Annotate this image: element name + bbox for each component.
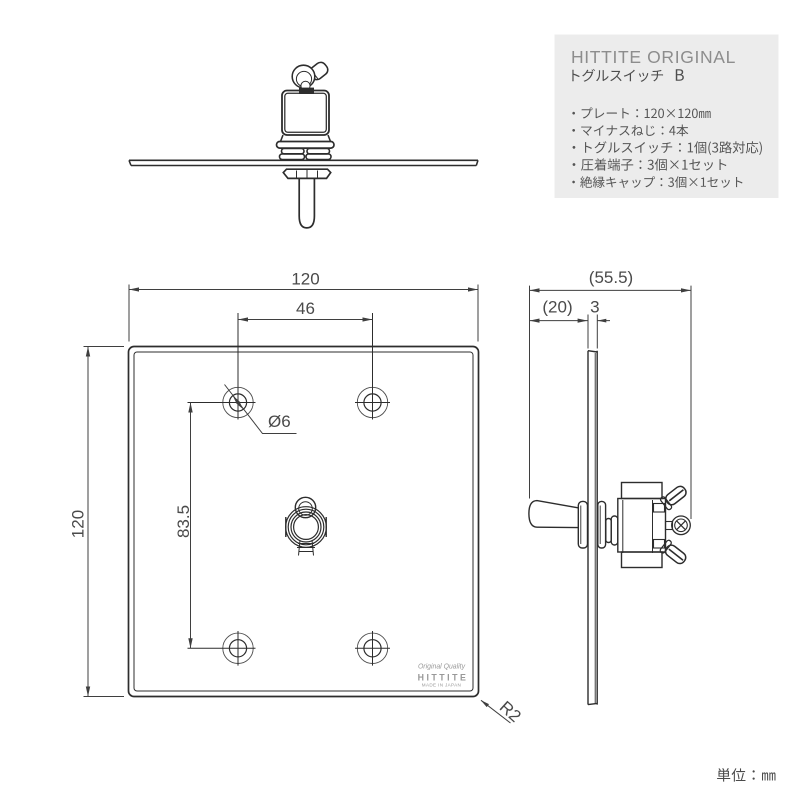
svg-text:HITTITE: HITTITE	[418, 673, 469, 683]
svg-text:120: 120	[291, 270, 319, 289]
svg-text:46: 46	[296, 299, 315, 318]
svg-text:(20): (20)	[542, 298, 572, 317]
svg-text:MADE IN JAPAN: MADE IN JAPAN	[422, 683, 461, 688]
svg-text:120: 120	[69, 510, 88, 538]
svg-text:Ø6: Ø6	[268, 412, 291, 431]
svg-text:3: 3	[590, 298, 599, 317]
svg-text:Original Quality: Original Quality	[418, 664, 466, 671]
svg-text:83.5: 83.5	[174, 505, 193, 538]
svg-text:(55.5): (55.5)	[589, 268, 633, 287]
svg-text:HITTITE ORIGINAL: HITTITE ORIGINAL	[571, 47, 736, 67]
